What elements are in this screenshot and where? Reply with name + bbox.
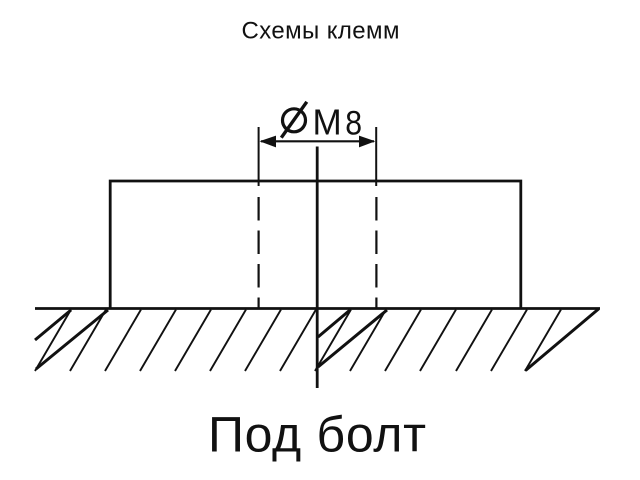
svg-text:Под болт: Под болт bbox=[208, 407, 427, 463]
svg-text:Схемы клемм: Схемы клемм bbox=[242, 18, 400, 45]
svg-text:M: M bbox=[313, 102, 342, 143]
